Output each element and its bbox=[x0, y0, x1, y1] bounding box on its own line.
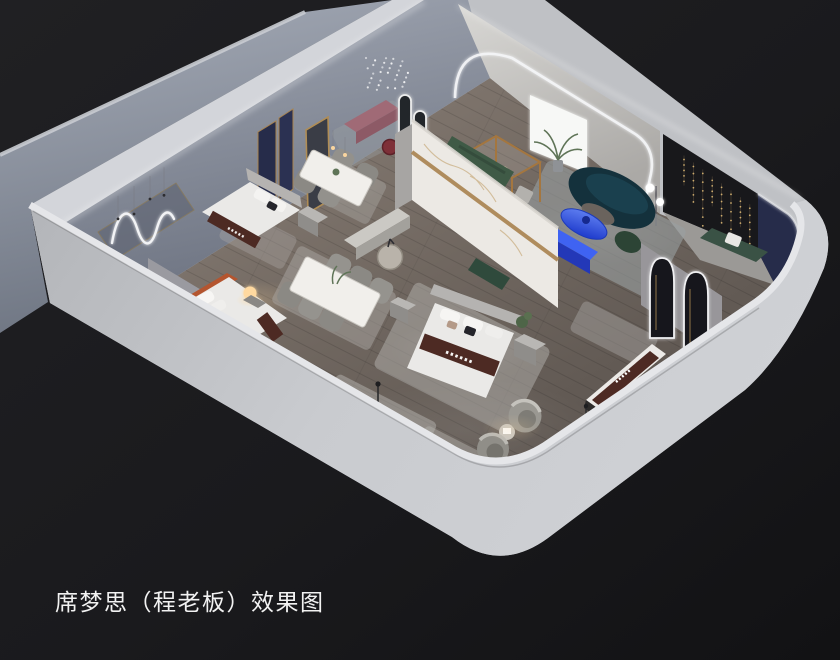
light-dot bbox=[702, 181, 704, 183]
light-dot bbox=[740, 217, 742, 219]
light-dot bbox=[730, 228, 732, 230]
light-dot bbox=[369, 82, 371, 84]
light-dot bbox=[372, 64, 374, 66]
light-dot bbox=[392, 58, 394, 60]
light-dot bbox=[370, 77, 372, 79]
light-dot bbox=[702, 190, 704, 192]
light-dot bbox=[721, 208, 723, 210]
light-dot bbox=[740, 206, 742, 208]
light-dot bbox=[379, 80, 381, 82]
light-dot bbox=[149, 198, 152, 201]
light-dot bbox=[730, 211, 732, 213]
light-dot bbox=[390, 62, 392, 64]
light-dot bbox=[711, 185, 713, 187]
light-dot bbox=[385, 57, 387, 59]
light-dot bbox=[683, 164, 685, 166]
light-dot bbox=[331, 146, 335, 150]
light-dot bbox=[378, 84, 380, 86]
rendering-stage: 席梦思（程老板）效果图 bbox=[0, 0, 840, 660]
light-dot bbox=[401, 60, 403, 62]
showroom-3d-rendering bbox=[0, 0, 840, 660]
caption-title: 席梦思（程老板）效果图 bbox=[55, 583, 325, 617]
light-dot bbox=[133, 213, 136, 216]
light-dot bbox=[376, 89, 378, 91]
light-dot bbox=[365, 57, 367, 59]
light-dot bbox=[117, 218, 120, 221]
light-dot bbox=[693, 187, 695, 189]
light-dot bbox=[749, 229, 751, 231]
light-dot bbox=[400, 65, 402, 67]
light-dot bbox=[383, 62, 385, 64]
light-dot bbox=[721, 201, 723, 203]
light-dot bbox=[394, 87, 396, 89]
light-dot bbox=[730, 220, 732, 222]
light-dot bbox=[721, 194, 723, 196]
light-dot bbox=[683, 170, 685, 172]
light-dot bbox=[702, 199, 704, 201]
light-dot bbox=[749, 207, 751, 209]
light-dot bbox=[693, 201, 695, 203]
light-dot bbox=[740, 200, 742, 202]
light-dot bbox=[367, 67, 369, 69]
light-dot bbox=[389, 67, 391, 69]
light-dot bbox=[749, 222, 751, 224]
light-dot bbox=[721, 215, 723, 217]
light-dot bbox=[721, 222, 723, 224]
light-dot bbox=[730, 193, 732, 195]
light-dot bbox=[387, 87, 389, 89]
light-dot bbox=[396, 74, 398, 76]
light-dot bbox=[381, 66, 383, 68]
light-dot bbox=[711, 196, 713, 198]
light-dot bbox=[380, 71, 382, 73]
light-dot bbox=[740, 222, 742, 224]
light-dot bbox=[398, 69, 400, 71]
light-dot bbox=[749, 236, 751, 238]
light-dot bbox=[711, 190, 713, 192]
light-dot bbox=[403, 81, 405, 83]
light-dot bbox=[693, 180, 695, 182]
light-dot bbox=[387, 72, 389, 74]
light-dot bbox=[749, 214, 751, 216]
light-dot bbox=[405, 76, 407, 78]
light-dot bbox=[740, 211, 742, 213]
light-dot bbox=[374, 59, 376, 61]
light-dot bbox=[702, 225, 704, 227]
table-decor bbox=[582, 216, 590, 224]
light-dot bbox=[683, 175, 685, 177]
light-dot bbox=[693, 194, 695, 196]
light-dot bbox=[702, 173, 704, 175]
light-dot bbox=[721, 186, 723, 188]
light-dot bbox=[343, 153, 347, 157]
light-dot bbox=[730, 202, 732, 204]
light-dot bbox=[163, 194, 166, 197]
light-dot bbox=[683, 159, 685, 161]
marble-wall-side bbox=[395, 124, 412, 210]
light-dot bbox=[711, 201, 713, 203]
light-dot bbox=[683, 180, 685, 182]
light-dot bbox=[702, 207, 704, 209]
light-dot bbox=[394, 79, 396, 81]
light-dot bbox=[367, 86, 369, 88]
light-dot bbox=[711, 180, 713, 182]
table-plant bbox=[333, 169, 340, 176]
light-dot bbox=[693, 166, 695, 168]
arched-led-mirror-1 bbox=[650, 258, 674, 338]
round-side-table bbox=[378, 245, 403, 270]
light-dot bbox=[702, 216, 704, 218]
light-dot bbox=[372, 73, 374, 75]
light-dot bbox=[407, 72, 409, 74]
light-dot bbox=[693, 173, 695, 175]
light-dot bbox=[401, 86, 403, 88]
